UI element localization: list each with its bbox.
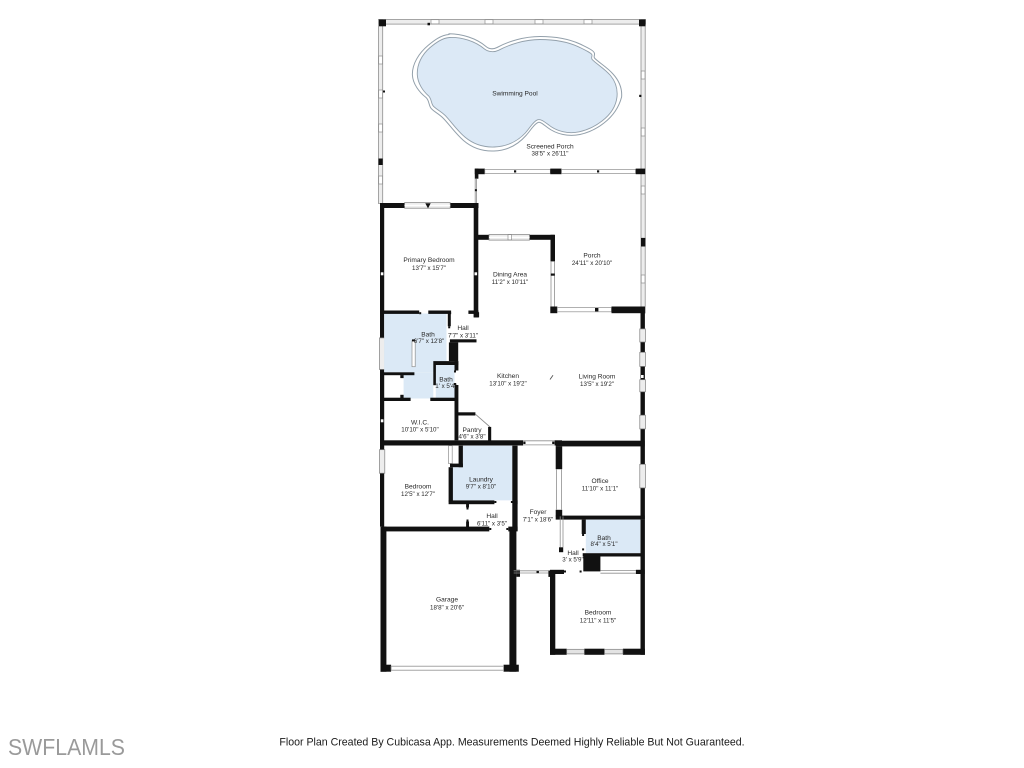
- svg-text:7'1" x 18'6": 7'1" x 18'6": [523, 517, 554, 524]
- svg-text:Hall: Hall: [457, 325, 469, 332]
- svg-text:12'5" x 12'7": 12'5" x 12'7": [401, 491, 435, 498]
- svg-text:9'7" x 8'10": 9'7" x 8'10": [466, 484, 497, 491]
- svg-text:7'7" x 3'11": 7'7" x 3'11": [448, 333, 478, 340]
- svg-text:Foyer: Foyer: [530, 509, 548, 516]
- svg-text:Swimming Pool: Swimming Pool: [492, 91, 538, 98]
- svg-text:6'11" x 3'5": 6'11" x 3'5": [477, 521, 507, 528]
- svg-text:1' x 5'4": 1' x 5'4": [435, 383, 456, 390]
- svg-text:Dining Area: Dining Area: [493, 272, 527, 279]
- svg-text:13'5" x 19'2": 13'5" x 19'2": [580, 381, 614, 388]
- svg-text:12'11" x 11'5": 12'11" x 11'5": [580, 618, 616, 625]
- svg-text:Kitchen: Kitchen: [497, 373, 519, 380]
- svg-text:Hall: Hall: [486, 513, 498, 520]
- svg-text:Screened Porch: Screened Porch: [526, 144, 574, 151]
- svg-text:Laundry: Laundry: [469, 477, 494, 484]
- svg-text:6'7" x 12'8": 6'7" x 12'8": [414, 338, 445, 345]
- svg-text:3' x 5'9": 3' x 5'9": [562, 557, 583, 564]
- svg-text:8'4" x 5'1": 8'4" x 5'1": [590, 541, 617, 548]
- svg-text:18'8" x 20'6": 18'8" x 20'6": [430, 605, 464, 612]
- svg-text:13'7" x 15'7": 13'7" x 15'7": [412, 265, 446, 272]
- svg-text:13'10" x 19'2": 13'10" x 19'2": [489, 381, 526, 388]
- svg-text:Primary Bedroom: Primary Bedroom: [403, 257, 455, 264]
- svg-text:SWFLAMLS: SWFLAMLS: [8, 734, 125, 760]
- svg-text:Office: Office: [591, 478, 608, 485]
- svg-text:Bedroom: Bedroom: [585, 610, 612, 617]
- svg-text:Porch: Porch: [583, 253, 601, 260]
- svg-text:4'6" x 3'8": 4'6" x 3'8": [458, 434, 485, 441]
- svg-text:W.I.C.: W.I.C.: [411, 420, 429, 427]
- svg-text:Living Room: Living Room: [579, 374, 616, 381]
- svg-text:Bedroom: Bedroom: [405, 484, 432, 491]
- svg-text:10'10" x 5'10": 10'10" x 5'10": [401, 427, 438, 434]
- svg-text:11'10" x 11'1": 11'10" x 11'1": [582, 486, 618, 493]
- svg-text:Floor Plan Created By Cubicasa: Floor Plan Created By Cubicasa App. Meas…: [279, 737, 744, 749]
- svg-text:38'5" x 26'11": 38'5" x 26'11": [532, 151, 569, 158]
- svg-text:24'11" x 20'10": 24'11" x 20'10": [572, 260, 612, 267]
- svg-text:Garage: Garage: [436, 597, 458, 604]
- svg-text:11'2" x 10'11": 11'2" x 10'11": [492, 279, 528, 286]
